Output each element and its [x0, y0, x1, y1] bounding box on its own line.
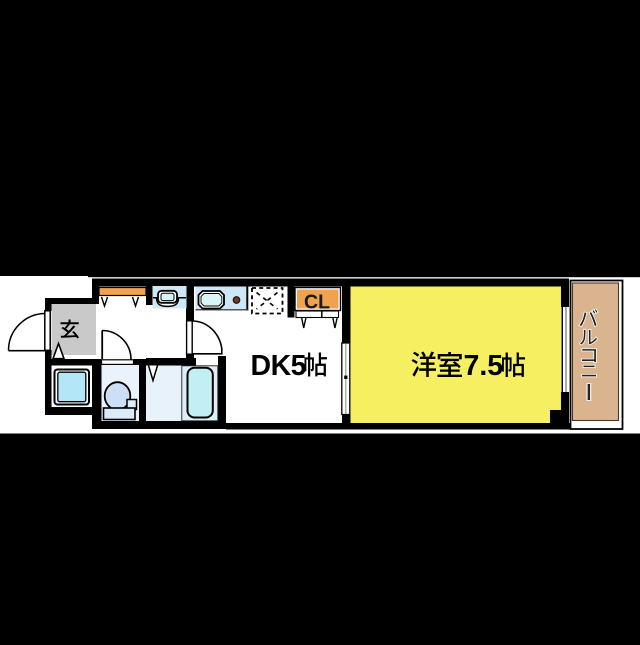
svg-text:CL: CL — [304, 292, 330, 314]
svg-text:7.5: 7.5 — [464, 350, 504, 382]
svg-text:DK5: DK5 — [251, 350, 307, 382]
